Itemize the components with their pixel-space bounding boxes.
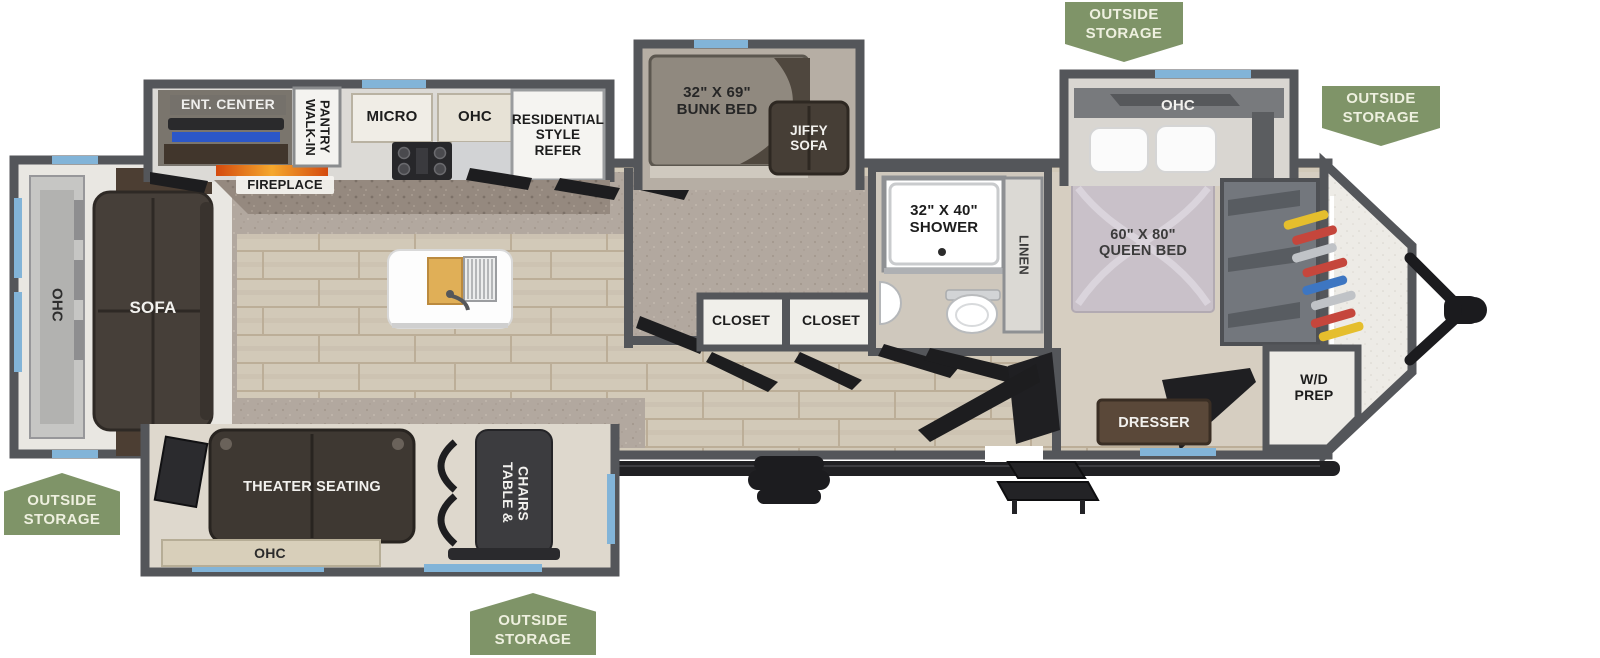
- walk-in-pantry-label: WALK-IN PANTRY: [292, 88, 342, 166]
- pillow: [1090, 128, 1148, 172]
- ohc-kitchen-label: OHC: [438, 106, 512, 128]
- closet-right-label: CLOSET: [794, 309, 868, 333]
- fireplace-label: FIREPLACE: [236, 176, 334, 194]
- linen-label: LINEN: [1004, 200, 1042, 310]
- ent-center-label: ENT. CENTER: [170, 95, 286, 115]
- ohc-bottom-label: OHC: [240, 544, 300, 564]
- closet-left-label: CLOSET: [704, 309, 778, 333]
- sofa-label: SOFA: [110, 296, 196, 320]
- ohc-rear-label: OHC: [32, 262, 80, 348]
- theater-seating-label: THEATER SEATING: [220, 476, 404, 498]
- queen-bed-label: 60" X 80" QUEEN BED: [1082, 222, 1204, 264]
- stabilizer-jack: [748, 456, 830, 504]
- bedroom-slide: [1064, 70, 1294, 186]
- bunk-bed-label: 32" X 69" BUNK BED: [652, 80, 782, 124]
- toilet: [947, 295, 997, 333]
- table-chairs-label: TABLE & CHAIRS: [480, 444, 550, 542]
- kitchen-island: [388, 250, 512, 328]
- wd-prep-label: W/D PREP: [1278, 366, 1350, 410]
- shower-label: 32" X 40" SHOWER: [888, 198, 1000, 242]
- pillow: [1156, 126, 1216, 172]
- dresser-label: DRESSER: [1104, 412, 1204, 434]
- hitch: [1410, 258, 1487, 360]
- ohc-bedroom-label: OHC: [1148, 96, 1208, 116]
- jiffy-sofa-label: JIFFY SOFA: [772, 116, 846, 160]
- frame-rail: [558, 461, 1340, 476]
- refer-label: RESIDENTIAL STYLE REFER: [514, 102, 602, 168]
- floorplan-canvas: ENT. CENTER WALK-IN PANTRY MICRO OHC RES…: [0, 0, 1600, 658]
- micro-label: MICRO: [354, 106, 430, 128]
